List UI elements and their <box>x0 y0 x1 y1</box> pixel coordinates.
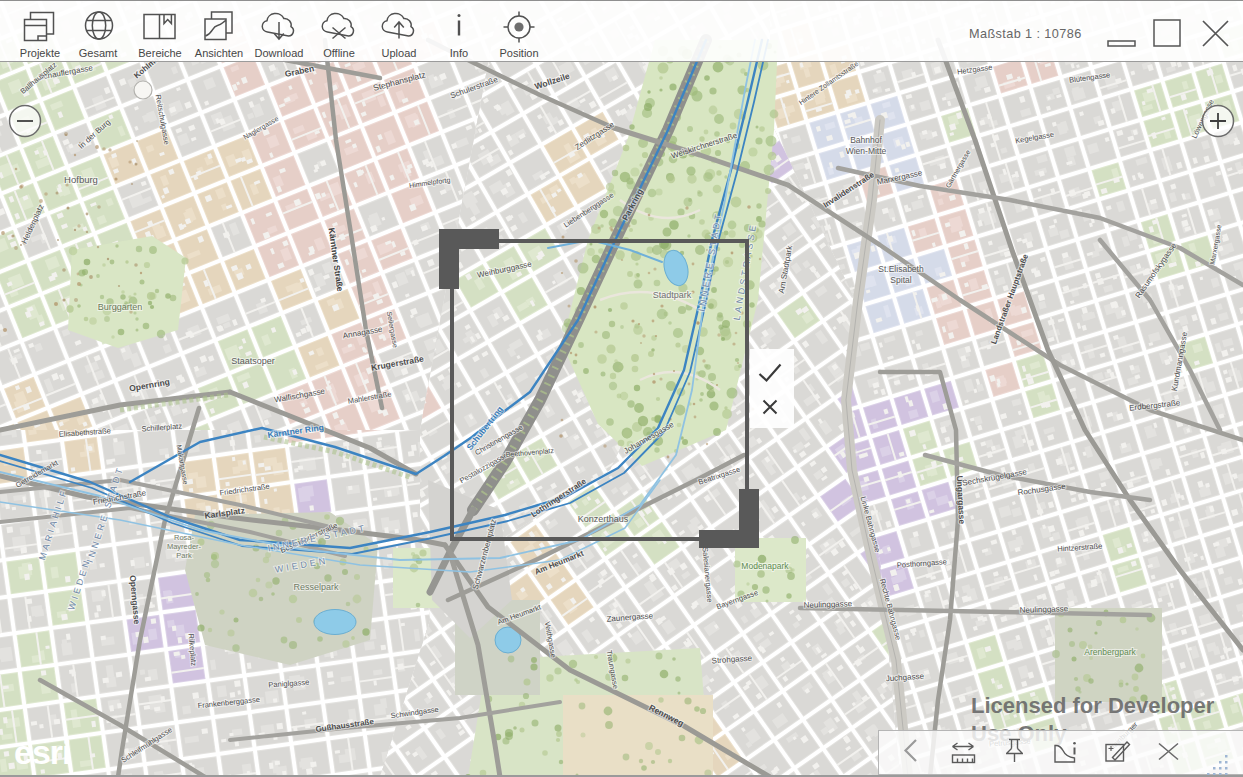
svg-text:Position: Position <box>499 47 538 59</box>
svg-text:Info: Info <box>450 47 468 59</box>
svg-text:Maßstab 1 : 10786: Maßstab 1 : 10786 <box>969 27 1082 41</box>
svg-text:Offline: Offline <box>323 47 355 59</box>
svg-text:Download: Download <box>255 47 304 59</box>
svg-text:Upload: Upload <box>382 47 417 59</box>
svg-text:Projekte: Projekte <box>20 47 60 59</box>
svg-text:Bereiche: Bereiche <box>138 47 181 59</box>
svg-text:Ansichten: Ansichten <box>195 47 243 59</box>
svg-text:Gesamt: Gesamt <box>79 47 118 59</box>
